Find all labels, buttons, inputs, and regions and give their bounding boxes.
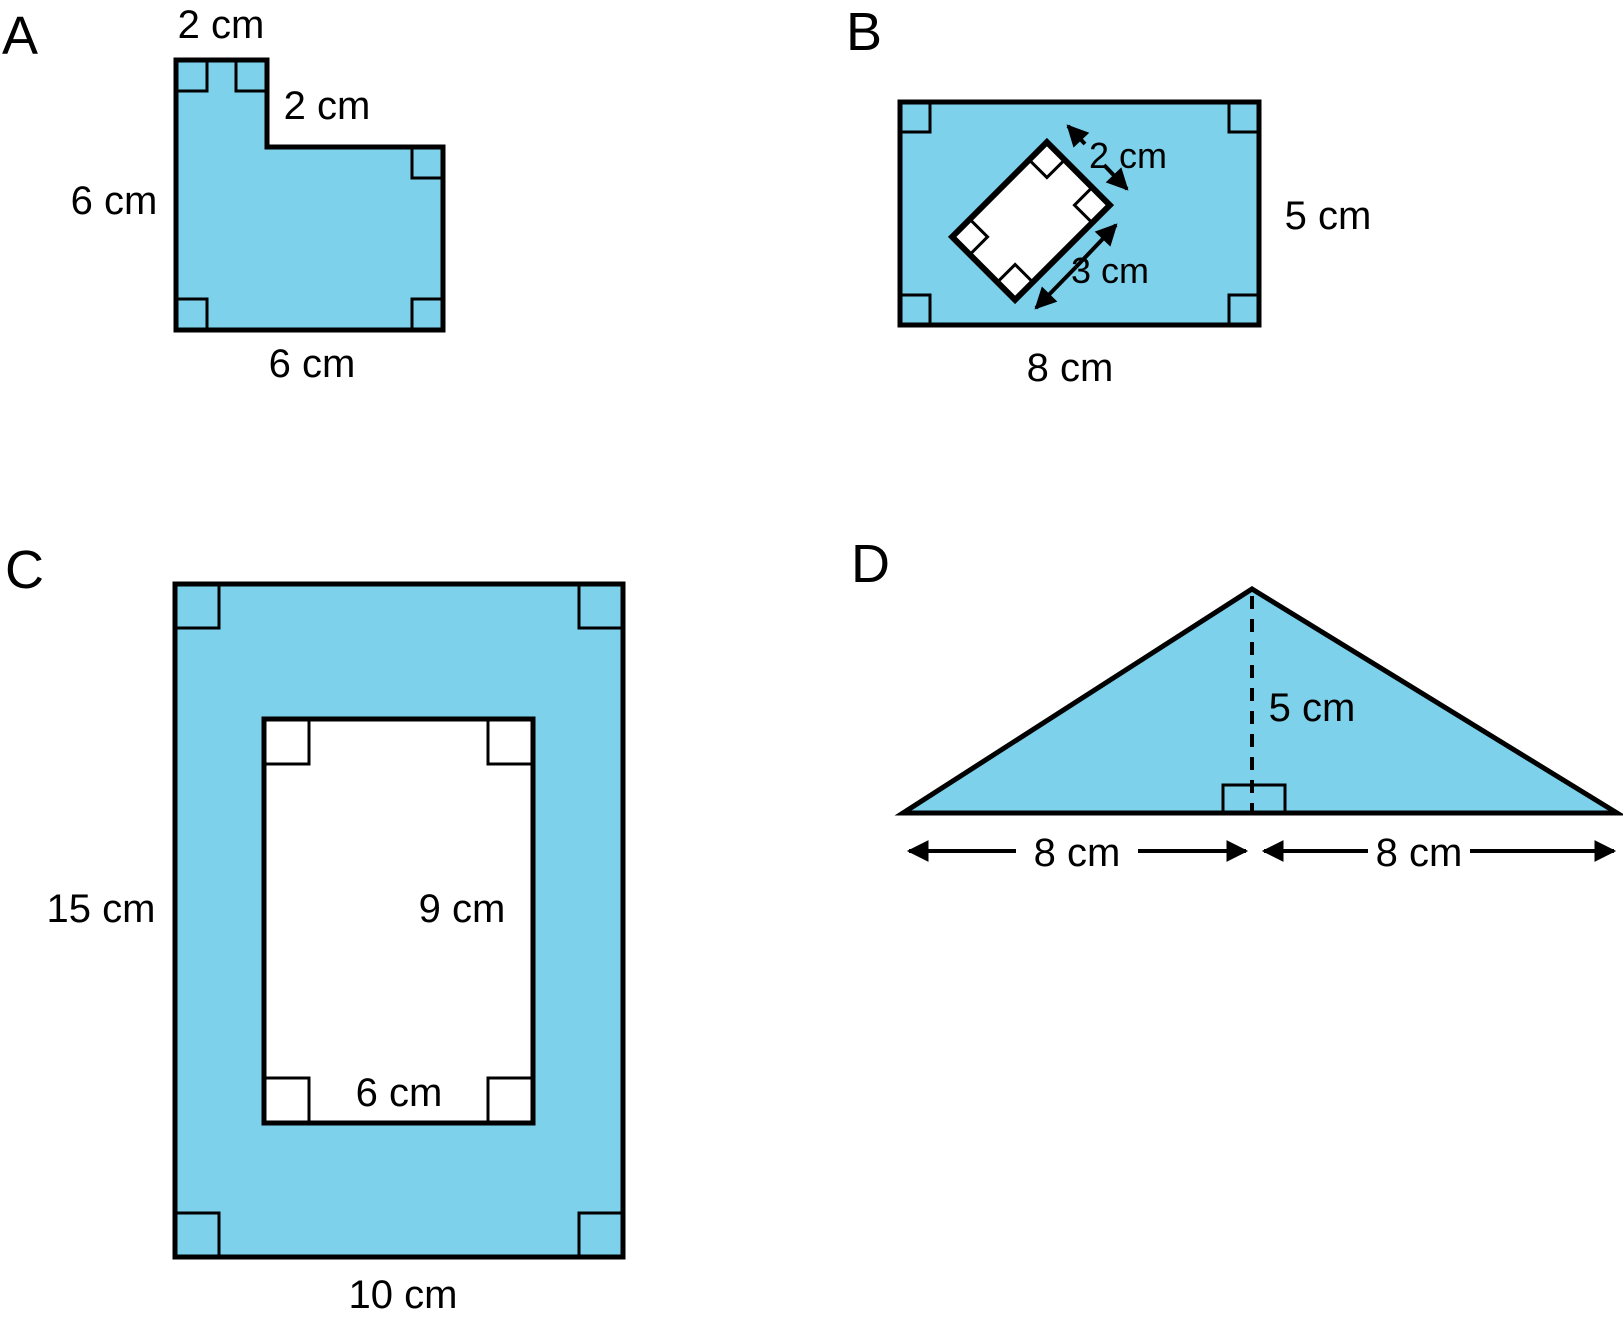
figure-a: A 2 cm 2 cm 6 cm 6 cm xyxy=(2,3,443,386)
figure-b: B 2 cm 3 cm 5 cm 8 cm xyxy=(846,2,1371,390)
figure-c-letter: C xyxy=(5,540,44,600)
geometry-worksheet: A 2 cm 2 cm 6 cm 6 cm B 2 cm 3 cm 5 xyxy=(0,0,1623,1320)
figure-d-height-label: 5 cm xyxy=(1269,686,1356,730)
figure-a-letter: A xyxy=(2,6,38,66)
diagram-svg: A 2 cm 2 cm 6 cm 6 cm B 2 cm 3 cm 5 xyxy=(0,0,1623,1320)
figure-a-bottom-label: 6 cm xyxy=(269,342,356,386)
figure-a-notch-label: 2 cm xyxy=(284,84,371,128)
figure-c-hole-right-label: 9 cm xyxy=(419,887,506,931)
figure-a-top-label: 2 cm xyxy=(178,3,265,47)
figure-d-letter: D xyxy=(851,534,890,594)
figure-c: C 15 cm 9 cm 6 cm 10 cm xyxy=(5,540,623,1317)
figure-a-left-label: 6 cm xyxy=(71,179,158,223)
figure-d: D 5 cm 8 cm 8 cm xyxy=(851,534,1617,875)
figure-c-left-label: 15 cm xyxy=(47,887,156,931)
figure-b-bottom-label: 8 cm xyxy=(1027,346,1114,390)
figure-b-cutout-long-label: 3 cm xyxy=(1071,250,1149,291)
figure-b-cutout-short-label: 2 cm xyxy=(1089,135,1167,176)
figure-d-base-right-label: 8 cm xyxy=(1376,831,1463,875)
figure-b-letter: B xyxy=(846,2,882,62)
figure-d-shape xyxy=(903,589,1617,813)
figure-c-bottom-label: 10 cm xyxy=(349,1273,458,1317)
figure-b-right-label: 5 cm xyxy=(1285,194,1372,238)
figure-c-hole-bottom-label: 6 cm xyxy=(356,1071,443,1115)
figure-d-base-left-label: 8 cm xyxy=(1034,831,1121,875)
